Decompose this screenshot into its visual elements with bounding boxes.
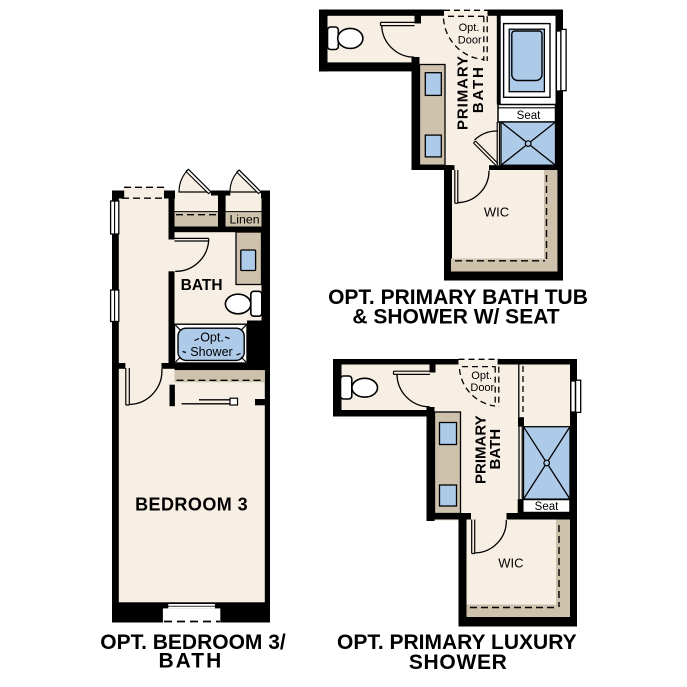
- svg-text:Seat: Seat: [535, 501, 559, 513]
- svg-text:SHOWER: SHOWER: [409, 651, 508, 674]
- svg-text:Linen: Linen: [229, 213, 259, 227]
- svg-text:WIC: WIC: [498, 555, 523, 570]
- svg-text:& SHOWER W/ SEAT: & SHOWER W/ SEAT: [352, 306, 559, 329]
- svg-text:BATH: BATH: [181, 277, 223, 294]
- svg-text:BEDROOM 3: BEDROOM 3: [135, 495, 248, 515]
- svg-text:Opt.: Opt.: [459, 22, 480, 34]
- svg-text:Door: Door: [470, 382, 494, 394]
- svg-text:Opt.: Opt.: [200, 331, 224, 345]
- svg-text:Opt.: Opt.: [471, 370, 492, 382]
- svg-text:BATH: BATH: [470, 65, 487, 113]
- svg-text:Shower: Shower: [190, 345, 232, 359]
- svg-text:WIC: WIC: [484, 205, 509, 220]
- svg-text:Seat: Seat: [517, 110, 541, 122]
- svg-text:BATH: BATH: [487, 429, 504, 470]
- svg-text:Door: Door: [458, 35, 482, 47]
- svg-text:BATH: BATH: [159, 650, 224, 673]
